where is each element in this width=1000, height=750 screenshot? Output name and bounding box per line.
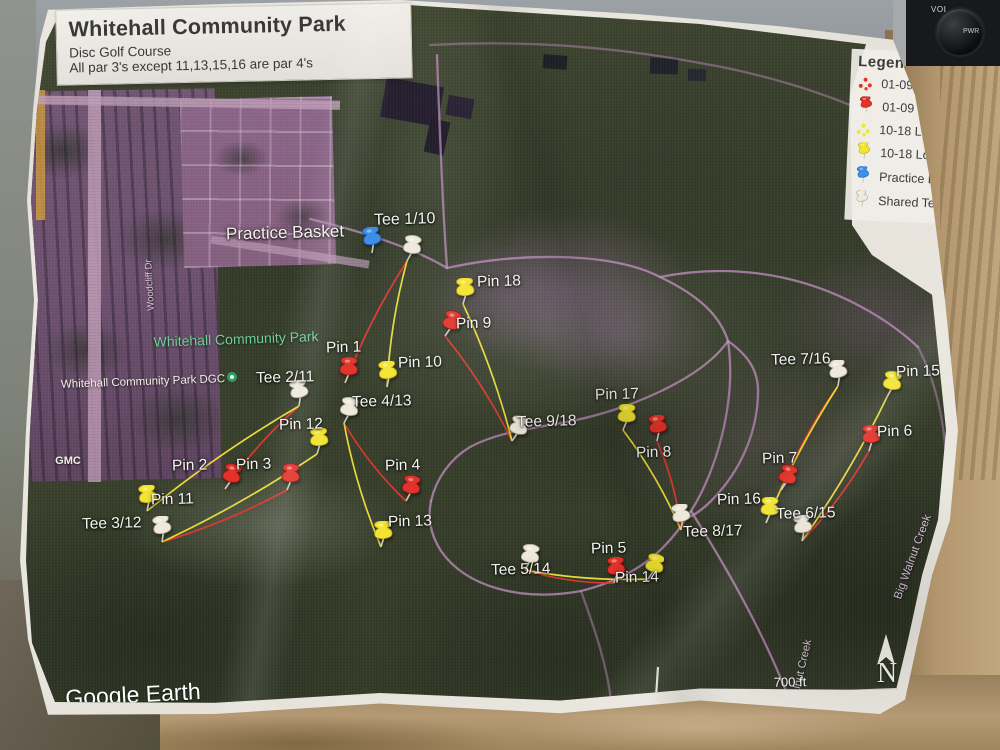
pin-label-pin-10: Pin 10: [398, 353, 442, 372]
pin-label-pin-8: Pin 8: [636, 444, 672, 463]
dots-long-icon: [855, 120, 874, 139]
pin-label-pin-16: Pin 16: [717, 490, 761, 509]
pin-label-pin-4: Pin 4: [385, 457, 421, 476]
car-radio: VOL PWR: [893, 0, 1000, 66]
pin-long-icon: [854, 142, 875, 163]
pin-label-pin-9: Pin 9: [456, 315, 492, 334]
pin-label-pin-1: Pin 1: [326, 339, 362, 358]
pin-label-tee-1-10: Tee 1/10: [374, 210, 436, 230]
pin-label-pin-6: Pin 6: [877, 423, 913, 442]
pin-label-tee-5-14: Tee 5/14: [491, 560, 551, 580]
pin-label-pin-5: Pin 5: [591, 540, 627, 559]
pin-label-tee-8-17: Tee 8/17: [683, 522, 743, 542]
pin-label-pin-13: Pin 13: [388, 512, 432, 531]
photo-of-course-map: VOL PWR: [0, 0, 1000, 750]
dots-short-icon: [857, 74, 876, 93]
pin-label-tee-6-15: Tee 6/15: [776, 504, 836, 524]
pin-label-tee-3-12: Tee 3/12: [82, 514, 142, 534]
pin-practice-icon: [853, 166, 874, 187]
pin-label-tee-7-16: Tee 7/16: [771, 350, 831, 370]
pin-label-practice-basket: Practice Basket: [226, 221, 345, 244]
pin-label-pin-3: Pin 3: [236, 456, 272, 475]
pin-label-pin-7: Pin 7: [762, 450, 798, 469]
pin-label-pin-14: Pin 14: [615, 568, 659, 587]
pin-label-tee-9-18: Tee 9/18: [517, 412, 577, 432]
pin-label-pin-2: Pin 2: [172, 457, 208, 476]
map-title-box: Whitehall Community Park Disc Golf Cours…: [55, 2, 413, 85]
pin-short-icon: [856, 96, 877, 117]
pin-tee-icon: [852, 190, 873, 211]
pin-label-pin-11: Pin 11: [151, 490, 194, 509]
pin-label-pin-15: Pin 15: [896, 362, 940, 381]
pin-label-pin-17: Pin 17: [595, 385, 639, 404]
pin-label-tee-4-13: Tee 4/13: [352, 392, 412, 412]
pin-label-tee-2-11: Tee 2/11: [256, 368, 315, 388]
pin-label-pin-12: Pin 12: [279, 415, 323, 434]
pin-label-pin-18: Pin 18: [477, 272, 521, 291]
printed-map-paper: Whitehall Community ParkWhitehall Commun…: [0, 0, 1000, 750]
map-title: Whitehall Community Park: [68, 11, 398, 43]
radio-power-label: PWR: [963, 28, 979, 35]
